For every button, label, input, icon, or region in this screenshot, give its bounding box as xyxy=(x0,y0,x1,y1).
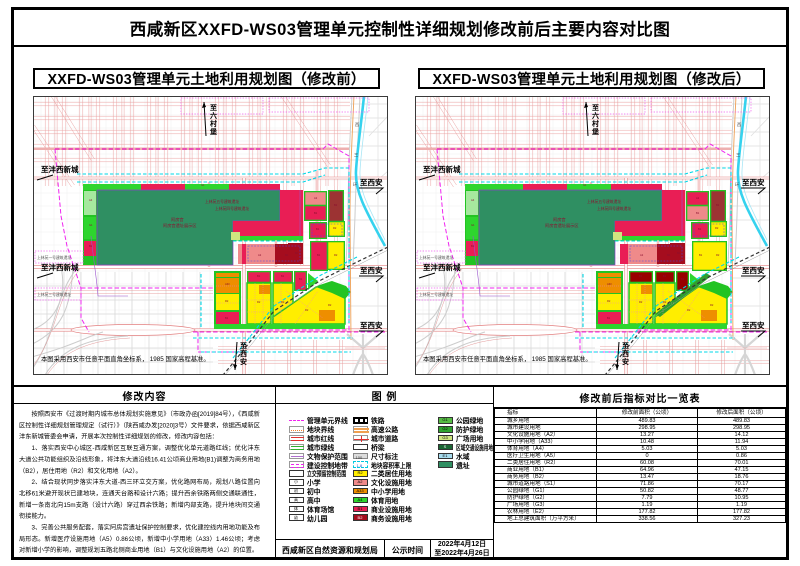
svg-text:阿房宫: 阿房宫 xyxy=(171,216,184,223)
svg-text:至沣西新城: 至沣西新城 xyxy=(423,262,461,272)
svg-text:A2: A2 xyxy=(640,253,644,257)
svg-text:上林苑一号建筑遗址: 上林苑一号建筑遗址 xyxy=(37,255,71,260)
svg-text:B1: B1 xyxy=(317,253,321,257)
svg-text:G1: G1 xyxy=(89,223,93,227)
svg-text:上林苑三号建筑遗址: 上林苑三号建筑遗址 xyxy=(37,292,71,297)
svg-text:R2: R2 xyxy=(225,299,229,303)
svg-text:至西安: 至西安 xyxy=(742,177,765,187)
svg-text:B1: B1 xyxy=(696,211,700,215)
svg-text:上林苑五号建筑遗址: 上林苑五号建筑遗址 xyxy=(587,199,621,204)
svg-text:B1: B1 xyxy=(281,274,285,278)
svg-text:至西安: 至西安 xyxy=(360,320,383,330)
svg-text:R2: R2 xyxy=(305,308,309,312)
svg-text:B1: B1 xyxy=(314,211,318,215)
svg-text:A33: A33 xyxy=(607,282,612,286)
svg-text:B2: B2 xyxy=(334,203,338,207)
svg-text:R2: R2 xyxy=(687,308,691,312)
svg-text:R2: R2 xyxy=(710,303,714,307)
svg-text:B1: B1 xyxy=(667,253,671,257)
svg-text:阿房宫: 阿房宫 xyxy=(553,216,566,223)
svg-text:B1: B1 xyxy=(663,274,667,278)
svg-text:B1: B1 xyxy=(681,277,685,281)
svg-text:R2: R2 xyxy=(715,226,719,230)
svg-text:G1: G1 xyxy=(471,223,475,227)
svg-text:本图采用西安市任意平面直角坐标系， 1985 国家高程基准: 本图采用西安市任意平面直角坐标系， 1985 国家高程基准。 xyxy=(423,354,592,363)
svg-text:至西安: 至西安 xyxy=(622,342,629,366)
svg-text:B1: B1 xyxy=(639,274,643,278)
svg-text:三: 三 xyxy=(736,152,740,157)
svg-text:本图采用西安市任意平面直角坐标系， 1985 国家高程基准: 本图采用西安市任意平面直角坐标系， 1985 国家高程基准。 xyxy=(41,354,210,363)
svg-text:上林苑四号建筑遗址: 上林苑四号建筑遗址 xyxy=(597,206,631,211)
svg-text:至西安: 至西安 xyxy=(742,320,765,330)
svg-text:A2: A2 xyxy=(314,196,318,200)
svg-text:上林苑一号建筑遗址: 上林苑一号建筑遗址 xyxy=(419,255,453,260)
svg-text:B1: B1 xyxy=(257,274,261,278)
svg-text:B1: B1 xyxy=(699,253,703,257)
svg-text:上林苑三号建筑遗址: 上林苑三号建筑遗址 xyxy=(419,292,453,297)
svg-text:B1: B1 xyxy=(677,251,681,255)
svg-text:R2: R2 xyxy=(639,300,643,304)
svg-text:G1: G1 xyxy=(201,183,205,187)
svg-text:R2: R2 xyxy=(257,300,261,304)
svg-text:上林苑五号建筑遗址: 上林苑五号建筑遗址 xyxy=(205,199,239,204)
svg-text:至西安: 至西安 xyxy=(360,177,383,187)
svg-text:A4: A4 xyxy=(471,198,475,202)
svg-text:至沣西新城: 至沣西新城 xyxy=(41,262,79,272)
svg-text:三: 三 xyxy=(354,152,358,157)
svg-text:R2: R2 xyxy=(281,300,285,304)
svg-text:A2: A2 xyxy=(258,253,262,257)
svg-text:R2: R2 xyxy=(328,303,332,307)
svg-text:B1: B1 xyxy=(471,244,475,248)
svg-text:至西安: 至西安 xyxy=(240,342,247,366)
svg-text:R2: R2 xyxy=(607,299,611,303)
svg-text:B1: B1 xyxy=(607,316,611,320)
svg-text:至沣西新城: 至沣西新城 xyxy=(423,164,461,174)
svg-text:阿房宫遗址展示区: 阿房宫遗址展示区 xyxy=(545,222,579,229)
svg-text:R2: R2 xyxy=(333,226,337,230)
svg-text:B1: B1 xyxy=(698,227,702,231)
svg-text:A33: A33 xyxy=(225,282,230,286)
svg-text:R2: R2 xyxy=(716,253,720,257)
svg-text:B2: B2 xyxy=(716,203,720,207)
svg-text:上林苑四号建筑遗址: 上林苑四号建筑遗址 xyxy=(215,206,249,211)
svg-text:R2: R2 xyxy=(663,300,667,304)
svg-text:B1: B1 xyxy=(225,316,229,320)
svg-text:B1: B1 xyxy=(299,277,303,281)
svg-text:B1: B1 xyxy=(316,227,320,231)
svg-text:A4: A4 xyxy=(89,198,93,202)
svg-text:G1: G1 xyxy=(583,183,587,187)
svg-text:R2: R2 xyxy=(334,253,338,257)
svg-text:至沣西新城: 至沣西新城 xyxy=(41,164,79,174)
svg-text:阿房宫遗址展示区: 阿房宫遗址展示区 xyxy=(163,222,197,229)
svg-text:B1: B1 xyxy=(285,253,289,257)
svg-text:至西安: 至西安 xyxy=(742,265,765,275)
svg-text:B1: B1 xyxy=(295,251,299,255)
svg-text:B1: B1 xyxy=(89,244,93,248)
svg-text:A2: A2 xyxy=(696,196,700,200)
svg-text:至西安: 至西安 xyxy=(360,265,383,275)
